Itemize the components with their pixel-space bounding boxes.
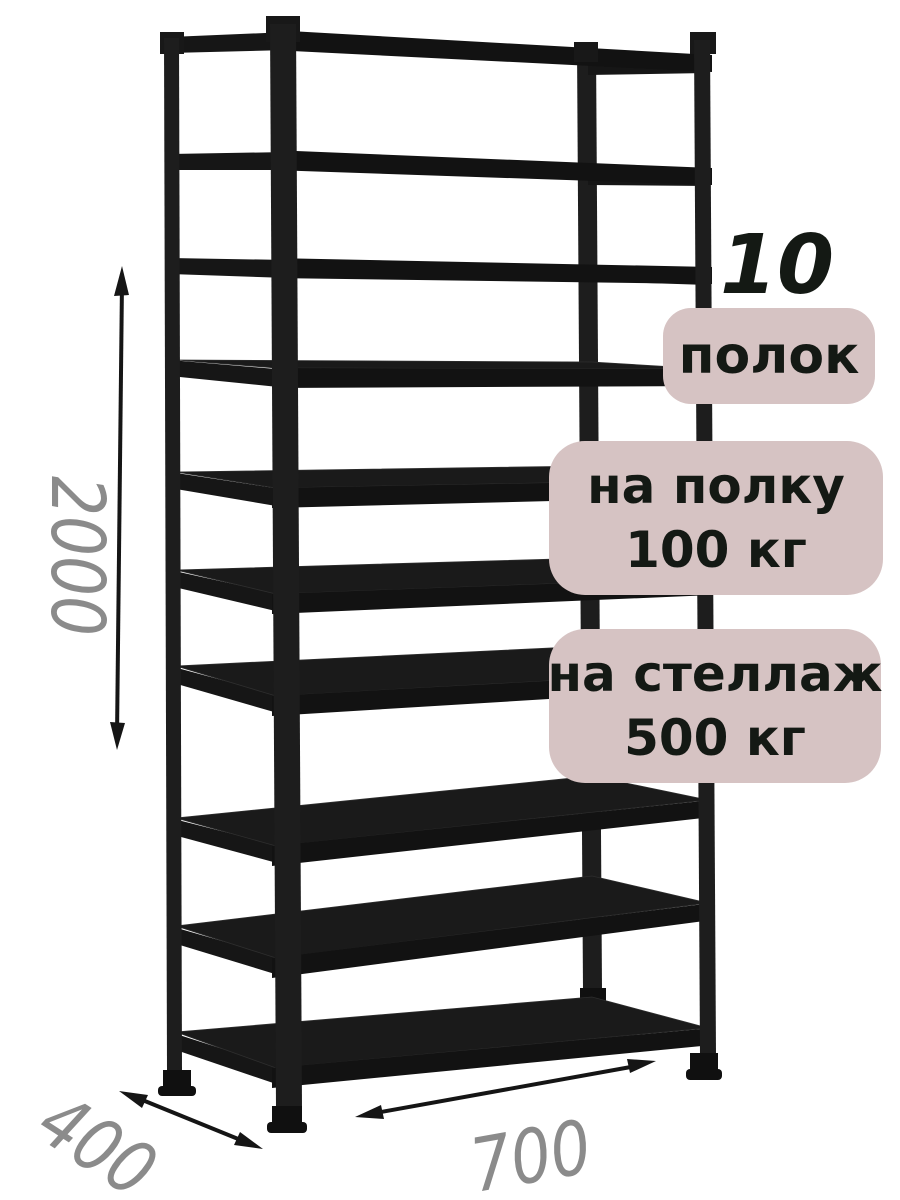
shelf-count-badge: полок (663, 308, 875, 404)
rack-illustration (0, 0, 900, 1200)
product-infographic: 2000 400 700 10 полок на полку 100 кг на… (0, 0, 900, 1200)
rack-load-line1: на стеллаж (548, 642, 883, 706)
rack-load-line2: 500 кг (624, 706, 806, 770)
rack-back-left-post (164, 38, 182, 1072)
width-dimension-label: 700 (465, 1110, 596, 1200)
shelf-load-badge: на полку 100 кг (549, 441, 883, 595)
height-dimension-label: 2000 (40, 476, 114, 636)
shelf-count-number: 10 (720, 225, 834, 307)
shelf-load-line1: на полку (587, 454, 845, 518)
rack-load-badge: на стеллаж 500 кг (549, 629, 881, 783)
shelf-load-line2: 100 кг (625, 518, 807, 582)
shelf-count-label: полок (679, 326, 860, 386)
